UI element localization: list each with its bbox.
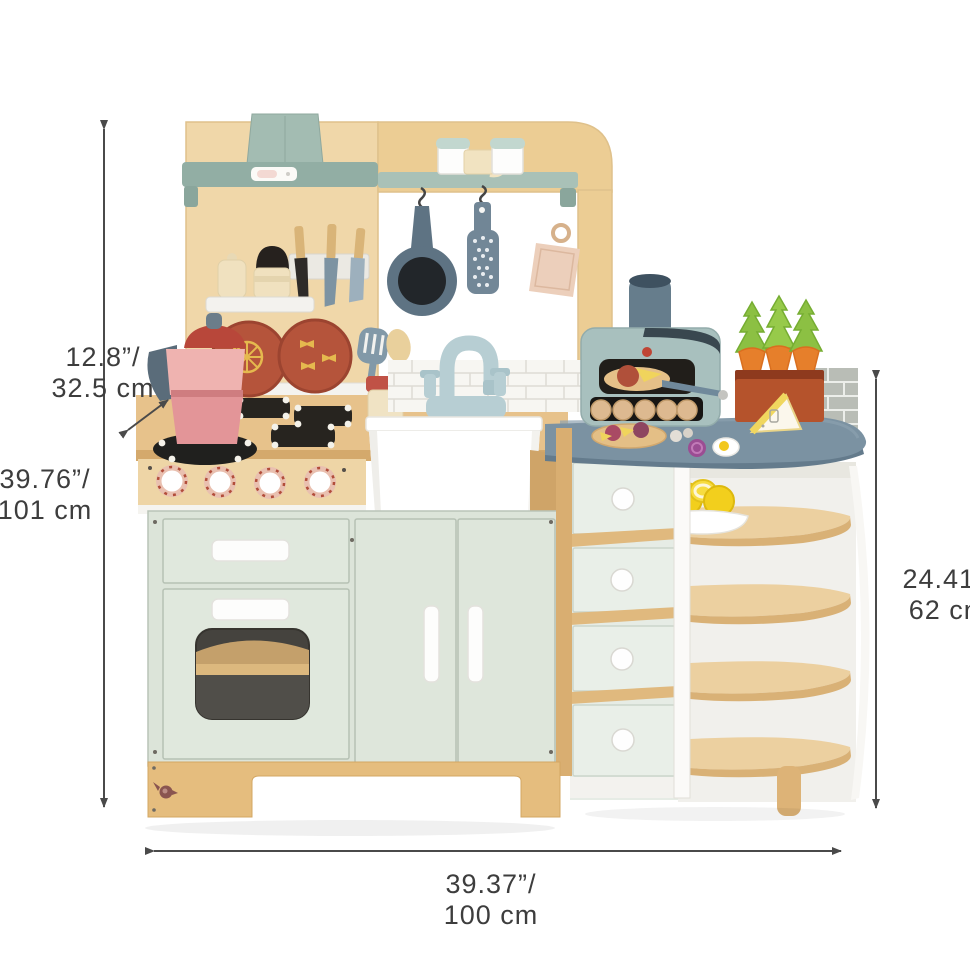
oven-handle xyxy=(212,599,289,620)
height-metric: 101 cm xyxy=(0,495,125,526)
kitchen-illustration xyxy=(0,0,970,970)
floor-shadow xyxy=(585,807,845,821)
knob xyxy=(156,465,188,497)
farmhouse-sink xyxy=(366,417,542,513)
knob xyxy=(254,467,286,499)
width-metric: 100 cm xyxy=(391,900,591,931)
hanging-pan xyxy=(387,188,457,316)
pepper-grinder xyxy=(254,246,290,298)
knob xyxy=(204,466,236,498)
depth-metric: 32.5 cm xyxy=(23,373,183,404)
canister xyxy=(490,138,525,174)
product-dimension-diagram: 12.8”/ 32.5 cm 39.76”/ 101 cm 24.41”/ 62… xyxy=(0,0,970,970)
hanging-grater xyxy=(467,186,499,294)
floor-shadow xyxy=(145,820,555,836)
wood-divider xyxy=(556,428,572,776)
drawer-handle xyxy=(212,540,289,561)
door-handle xyxy=(468,606,483,682)
door-handle xyxy=(424,606,439,682)
width-inches: 39.37”/ xyxy=(391,869,591,900)
drawer-stack xyxy=(570,460,678,800)
side-height-metric: 62 cm xyxy=(868,595,970,626)
side-height-dimension-label: 24.41”/ 62 cm xyxy=(868,564,970,626)
base-cabinet xyxy=(148,511,560,766)
height-dimension-label: 39.76”/ 101 cm xyxy=(0,464,125,526)
depth-dimension-label: 12.8”/ 32.5 cm xyxy=(23,342,183,404)
side-height-inches: 24.41”/ xyxy=(868,564,970,595)
height-inches: 39.76”/ xyxy=(0,464,125,495)
width-dimension-label: 39.37”/ 100 cm xyxy=(391,869,591,931)
pot-holder xyxy=(529,225,580,297)
carrot xyxy=(763,296,795,380)
fire-logs xyxy=(591,400,697,420)
knob xyxy=(304,466,336,498)
base-rail xyxy=(148,762,560,817)
cabinet-door xyxy=(355,519,456,763)
depth-inches: 12.8”/ xyxy=(23,342,183,373)
shelf-partition xyxy=(674,462,690,798)
